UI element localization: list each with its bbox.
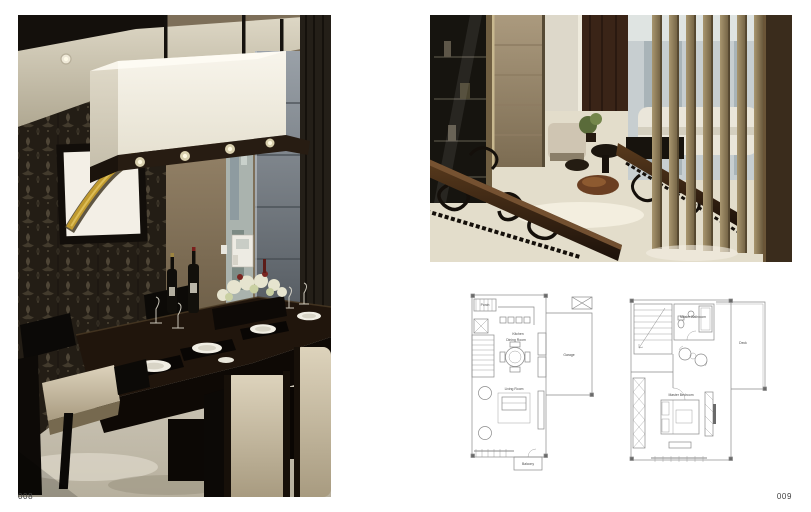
stairwell-photo <box>430 15 792 262</box>
plan-b-label-bath: Master Bathroom <box>680 315 706 319</box>
page-number-left: 008 <box>18 492 33 501</box>
plan-b-outline <box>631 300 731 460</box>
plan-a-labels: Porch Kitchen Dining Room Garage Living … <box>481 303 575 466</box>
plan-a-label-dining: Dining Room <box>506 338 526 342</box>
floor-sheen <box>646 245 738 261</box>
plan-a-label-kitchen: Kitchen <box>512 332 523 336</box>
page-number-right: 009 <box>777 492 792 501</box>
plan-a-label-living: Living Room <box>505 387 524 391</box>
plan-a-label-porch: Porch <box>481 303 490 307</box>
doorway <box>545 15 628 111</box>
blind-panel <box>492 15 545 167</box>
right-column <box>763 15 792 262</box>
floor-plan-a: Porch Kitchen Dining Room Garage Living … <box>458 291 601 473</box>
plan-b-deck <box>716 302 765 389</box>
plan-b-label-deck: Deck <box>739 341 747 345</box>
floor-plan-b: Master Bathroom Deck Master Bedroom <box>621 292 769 469</box>
plan-a-label-balcony: Balcony <box>522 462 534 466</box>
plan-b-labels: Master Bathroom Deck Master Bedroom <box>668 315 747 397</box>
plan-b-label-bedroom: Master Bedroom <box>668 393 693 397</box>
plan-a-label-garage: Garage <box>563 353 574 357</box>
dining-room-photo <box>18 15 331 497</box>
